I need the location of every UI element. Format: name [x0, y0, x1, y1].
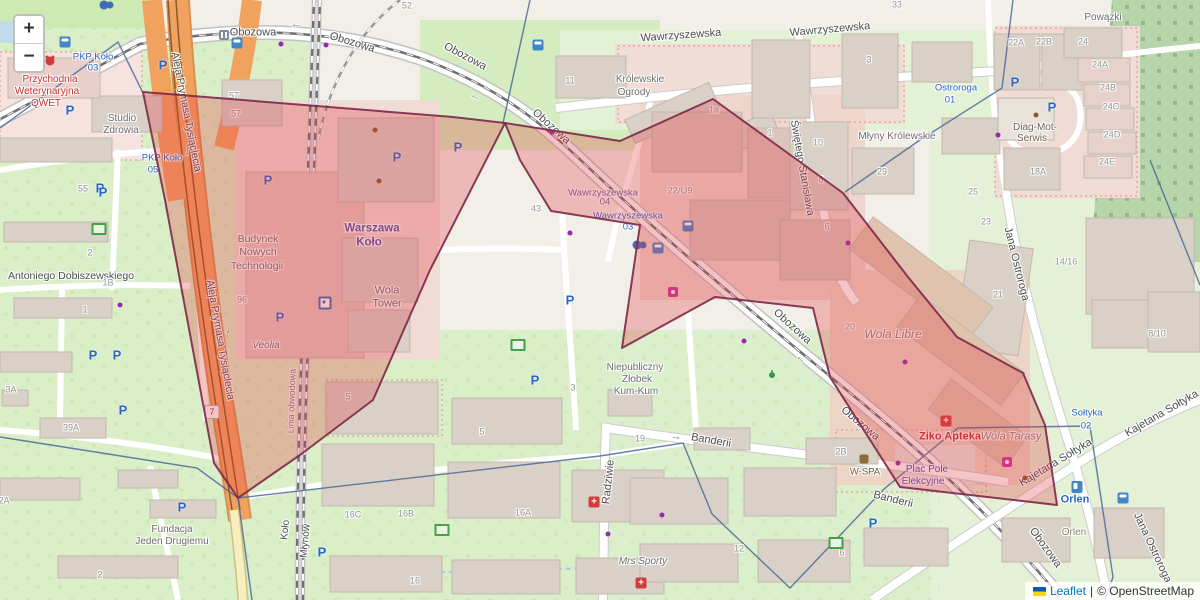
house-number: 96	[237, 296, 247, 305]
house-number: 55	[78, 185, 88, 194]
house-number: 1	[767, 129, 772, 138]
poi-label: Tower	[372, 299, 401, 310]
house-number: 57	[229, 92, 239, 101]
poi-label: Jeden Drugiemu	[135, 537, 208, 547]
house-number: 10	[813, 139, 823, 148]
parking-icon: P	[566, 293, 575, 308]
transit-stop-label: PKP Koło	[142, 153, 183, 163]
parking-icon: P	[1048, 100, 1057, 115]
house-number: 8	[818, 176, 823, 185]
poi-dot-icon	[550, 130, 555, 135]
house-number: 2B	[835, 448, 846, 457]
house-number: 1	[82, 306, 87, 315]
house-number: 24D	[1104, 131, 1121, 140]
attribution-separator: |	[1090, 584, 1093, 598]
house-number: 18A	[1030, 168, 1046, 177]
oneway-arrow: →	[1034, 524, 1049, 539]
oneway-arrow: →	[182, 146, 194, 158]
bike-icon	[100, 1, 109, 10]
poi-dot-icon	[377, 179, 382, 184]
poi-dot-icon	[118, 303, 123, 308]
house-number: 6	[839, 549, 844, 558]
parking-icon: P	[66, 103, 75, 118]
transit-stop-label: Wawrzyszewska	[568, 188, 638, 198]
street-label: Wawrzyszewska	[789, 21, 871, 39]
street-label: Obozowa	[328, 31, 376, 55]
poi-label: Żłobek	[622, 375, 652, 385]
pharmacy-label: Ziko Apteka	[919, 432, 981, 443]
street-label: Obozowa	[230, 28, 276, 39]
transit-stop-label: Wawrzyszewska	[593, 211, 663, 221]
street-label: Aleja Prymasa Tysiąclecia	[204, 279, 235, 401]
house-number: 22A	[1008, 39, 1024, 48]
house-number: 1a	[709, 106, 719, 115]
bus-stop-icon	[653, 243, 664, 254]
street-label: Radziwie	[601, 459, 617, 505]
oneway-arrow: →	[291, 21, 302, 32]
poi-label: Technologii	[231, 261, 284, 272]
bus-stop-icon	[60, 37, 71, 48]
poi-dot-icon	[324, 43, 329, 48]
tram-stop-icon	[219, 30, 229, 40]
parking-icon: P	[531, 373, 540, 388]
street-label: Obozowa	[1027, 526, 1063, 570]
playground-icon	[511, 339, 526, 351]
house-number: 12	[734, 545, 744, 554]
poi-label: Królewskie	[616, 75, 664, 85]
street-label: Obozowa	[771, 307, 813, 346]
house-number: 24B	[1100, 84, 1116, 93]
house-number: 3A	[5, 386, 16, 395]
poi-label: Budynek	[238, 234, 279, 245]
poi-label: Wola	[375, 286, 400, 297]
poi-dot-icon	[568, 231, 573, 236]
poi-label: Plac Pole	[906, 465, 948, 475]
poi-label: Młyny Królewskie	[858, 132, 935, 142]
poi-dot-icon	[996, 133, 1001, 138]
house-number: 3	[570, 384, 575, 393]
house-number: 1B	[102, 279, 113, 288]
house-number: 8/10	[1148, 330, 1166, 339]
street-label: Obozowa	[530, 107, 572, 146]
house-number: 24A	[1092, 61, 1108, 70]
street-label: Kajetana Sołtyka	[1018, 437, 1094, 489]
parking-icon: P	[119, 403, 128, 418]
street-label: Świętego Stanisława	[788, 119, 815, 216]
parking-icon: P	[96, 181, 105, 196]
house-number: 39A	[63, 424, 79, 433]
poi-label: Fundacja	[151, 525, 192, 535]
poi-label: Przychodnia	[22, 75, 77, 85]
poi-label: Elekcyjne	[902, 477, 945, 487]
house-number: 43	[531, 205, 541, 214]
house-number: 3	[866, 56, 871, 65]
rail-station-icon	[319, 297, 332, 310]
parking-icon: P	[1011, 75, 1020, 90]
house-number: 33	[892, 1, 902, 10]
street-label: Koło	[280, 520, 292, 541]
cart-icon	[1002, 457, 1012, 467]
poi-label: W-SPA	[850, 467, 880, 477]
poi-label: Niepubliczny	[607, 363, 664, 373]
parking-icon: P	[89, 348, 98, 363]
transit-stop-label: 03	[623, 222, 634, 232]
poi-label: Orlen	[1061, 495, 1090, 506]
house-number: 22/U9	[667, 186, 692, 196]
bike-icon	[633, 241, 642, 250]
playground-icon	[829, 537, 844, 549]
poi-label: Ogrody	[618, 88, 651, 98]
poi-dot-icon	[1023, 476, 1028, 481]
pharmacy-icon: +	[636, 578, 647, 589]
street-label: Obozowa	[442, 41, 488, 73]
house-number: 2	[87, 249, 92, 258]
house-number: 14/16	[1055, 258, 1078, 267]
poi-label: Mrs Sporty	[619, 557, 667, 567]
bus-stop-icon	[232, 38, 243, 49]
transit-stop-label: Ostroroga	[935, 83, 977, 93]
house-number: 57	[231, 110, 241, 119]
station-label: Koło	[356, 237, 382, 249]
transit-stop-label: PKP Koło	[73, 52, 114, 62]
poi-label: Wola Tarasy	[981, 432, 1042, 443]
poi-label: Powązki	[1084, 13, 1121, 23]
poi-label: Kum-Kum	[614, 387, 658, 397]
street-label: Młynów	[299, 524, 312, 559]
transit-stop-label: 02	[1081, 421, 1092, 431]
transit-stop-label: 01	[945, 95, 956, 105]
house-number: 5	[479, 428, 484, 437]
poi-label: Wola Libre	[864, 328, 921, 340]
transit-stop-label: 05	[148, 165, 159, 175]
fuel-icon	[1072, 481, 1083, 493]
poi-dot-icon	[846, 241, 851, 246]
poi-label: Serwis	[1017, 134, 1047, 144]
oneway-arrow: →	[792, 352, 808, 368]
osm-credit[interactable]: © OpenStreetMap	[1097, 584, 1194, 598]
house-number: 24	[1078, 38, 1088, 47]
cart-icon	[668, 287, 678, 297]
playground-icon	[92, 223, 107, 235]
house-number: 22B	[1036, 38, 1052, 47]
attribution-bar: Leaflet | © OpenStreetMap	[1025, 582, 1200, 600]
bus-stop-icon	[533, 40, 544, 51]
transit-stop-label: Sołtyka	[1071, 408, 1102, 418]
house-number: 52	[402, 2, 412, 11]
poi-label: Nowych	[239, 247, 276, 258]
poi-dot-icon	[279, 42, 284, 47]
house-number: 25	[968, 188, 978, 197]
street-label: Obozowa	[839, 405, 882, 443]
house-number: 24C	[1103, 103, 1120, 112]
house-number: 16	[410, 577, 420, 586]
parking-icon: P	[99, 185, 108, 200]
playground-icon	[435, 524, 450, 536]
runner-icon	[769, 372, 775, 378]
poi-label: Studio	[108, 114, 136, 124]
house-number: 16C	[345, 511, 362, 520]
house-number: 24E	[1099, 158, 1115, 167]
house-number: 6	[824, 223, 829, 232]
bus-stop-icon	[1118, 493, 1129, 504]
oneway-arrow: →	[670, 431, 682, 443]
poi-label: Diag-Mot-	[1013, 123, 1057, 133]
house-number: 29	[877, 168, 887, 177]
ukraine-flag-icon	[1033, 587, 1046, 596]
spa-icon	[860, 455, 869, 464]
house-number: 5	[345, 393, 350, 402]
poi-dot-icon	[660, 513, 665, 518]
parking-icon: P	[393, 150, 402, 165]
street-label: Jana Ostroroga	[1001, 226, 1030, 302]
poi-label: Orlen	[1062, 528, 1086, 538]
poi-label: Veolia	[252, 341, 279, 351]
station-label: Warszawa	[344, 223, 399, 235]
poi-dot-icon	[606, 532, 611, 537]
route-ref-badge: 7	[204, 405, 219, 419]
street-label: Jana Ostroroga	[1131, 511, 1173, 584]
parking-icon: P	[318, 545, 327, 560]
poi-dot-icon	[896, 461, 901, 466]
parking-icon: P	[113, 348, 122, 363]
bus-stop-icon	[683, 221, 694, 232]
street-label: Linia obwodowa	[286, 369, 297, 434]
transit-stop-label: 03	[88, 63, 99, 73]
parking-icon: P	[264, 173, 273, 188]
poi-dot-icon	[903, 360, 908, 365]
poi-label: QWET	[31, 99, 61, 109]
house-number: 2A	[0, 497, 10, 506]
transit-stop-label: 04	[600, 197, 611, 207]
house-number: 16B	[398, 510, 414, 519]
house-number: 20	[845, 323, 855, 332]
zoom-control: + −	[13, 14, 45, 73]
house-number: 11	[565, 77, 574, 86]
zoom-in-button[interactable]: +	[15, 16, 43, 43]
oneway-arrow: →	[468, 91, 483, 106]
zoom-out-button[interactable]: −	[15, 43, 43, 71]
pharmacy-icon: +	[589, 497, 600, 508]
parking-icon: P	[159, 58, 168, 73]
pharmacy-icon: +	[941, 416, 952, 427]
house-number: 16A	[515, 509, 531, 518]
parking-icon: P	[454, 140, 463, 155]
parking-icon: P	[869, 516, 878, 531]
house-number: 19	[635, 435, 645, 444]
parking-icon: P	[276, 310, 285, 325]
oneway-arrow: →	[223, 324, 236, 337]
poi-dot-icon	[1034, 113, 1039, 118]
street-label: Wawrzyszewska	[640, 28, 721, 45]
poi-label: Zdrowia	[103, 126, 139, 136]
map-labels-layer: ObozowaObozowaObozowaObozowaObozowaObozo…	[0, 0, 1200, 600]
poi-label: Weterynaryjna	[15, 87, 79, 97]
poi-dot-icon	[742, 339, 747, 344]
poi-dot-icon	[373, 128, 378, 133]
house-number: 21	[993, 291, 1003, 300]
leaflet-link[interactable]: Leaflet	[1050, 584, 1086, 598]
street-label: Antoniego Dobiszewskiego	[8, 271, 134, 282]
street-label: Banderii	[690, 432, 732, 450]
parking-icon: P	[178, 500, 187, 515]
street-label: Kajetana Sołtyka	[1123, 389, 1200, 440]
street-label: Banderii	[872, 490, 914, 510]
house-number: 23	[981, 218, 991, 227]
street-label: Aleja Prymasa Tysiąclecia	[169, 51, 203, 173]
vet-icon	[46, 57, 55, 66]
map-canvas[interactable]: ObozowaObozowaObozowaObozowaObozowaObozo…	[0, 0, 1200, 600]
house-number: 2	[97, 571, 102, 580]
